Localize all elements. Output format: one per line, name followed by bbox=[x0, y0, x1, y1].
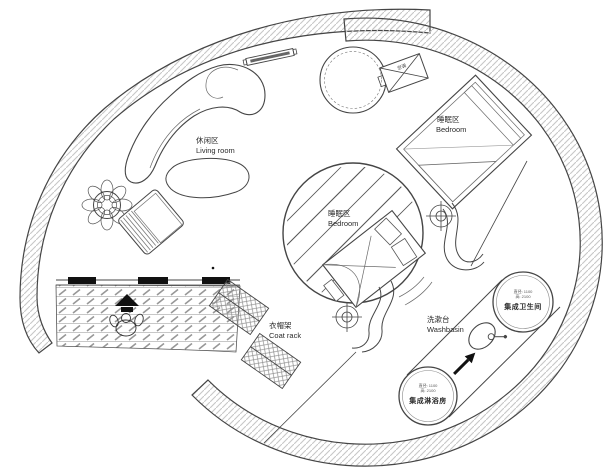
plan-dot bbox=[212, 267, 215, 270]
toilet-spec-2: 高: 2100 bbox=[515, 293, 531, 299]
round-table bbox=[320, 47, 386, 113]
rug bbox=[166, 158, 249, 197]
shower-spec-2: 高: 2100 bbox=[420, 387, 436, 393]
bedroom-center-label-zh: 睡眠区 bbox=[328, 209, 351, 218]
floor-plan: 空调 bbox=[0, 0, 611, 473]
wall-shelf bbox=[243, 48, 297, 66]
washbasin-label-en: Washbasin bbox=[427, 325, 464, 334]
bedroom-right-label-en: Bedroom bbox=[436, 125, 466, 134]
bedroom-right-label-zh: 睡眠区 bbox=[437, 115, 460, 124]
coat-rack-label-zh: 衣帽架 bbox=[269, 320, 292, 330]
toilet-pod: 直径: 1100 高: 2100 集成卫生间 bbox=[493, 272, 553, 332]
shower-pod: 直径: 1100 高: 2100 集成淋浴房 bbox=[399, 367, 457, 425]
living-label-en: Living room bbox=[196, 146, 235, 155]
living-label-zh: 休闲区 bbox=[196, 135, 219, 145]
toilet-pod-label: 集成卫生间 bbox=[503, 302, 542, 311]
door-panel bbox=[68, 277, 96, 284]
entrance-walkway bbox=[56, 285, 240, 352]
entrance-wall bbox=[56, 277, 240, 285]
flow-arrow-icon bbox=[451, 349, 479, 377]
shower-pod-label: 集成淋浴房 bbox=[408, 396, 447, 405]
coat-rack-unit bbox=[241, 334, 300, 389]
bed-top-right bbox=[397, 75, 532, 209]
armchair bbox=[117, 188, 185, 255]
washbasin-label-zh: 洗漱台 bbox=[427, 314, 450, 324]
bedroom-center-label-en: Bedroom bbox=[328, 219, 358, 228]
coat-rack-label-en: Coat rack bbox=[269, 331, 301, 340]
door-panel bbox=[138, 277, 168, 284]
